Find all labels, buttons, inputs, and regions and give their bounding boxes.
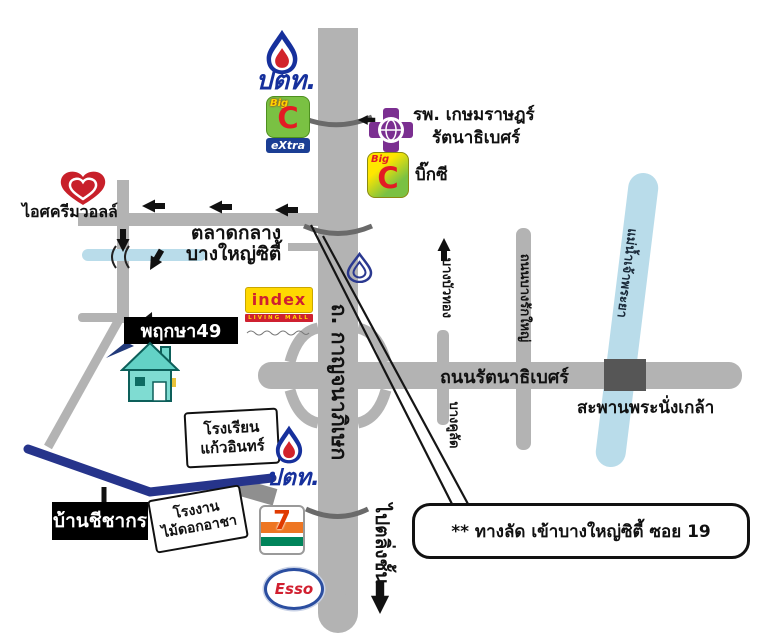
hospital-cross-icon <box>369 108 413 152</box>
phra-nang-klao-bridge-slab <box>604 359 646 391</box>
index-name-text: index <box>245 287 313 313</box>
index-logo: index LIVING MALL <box>245 287 313 341</box>
bang-rak-yai-road-label: ถนนบางรักใหญ่ <box>514 235 534 361</box>
school-line2: แก้วอินทร์ <box>200 436 265 458</box>
kanchanaphisek-road-label: ถ. กาญจนาภิเษก <box>329 277 349 487</box>
bigc-name-label: บิ๊กซี <box>415 161 448 188</box>
phra-nang-klao-bridge-label: สะพานพระนั่งเกล้า <box>577 394 714 421</box>
index-tagline-squiggle <box>245 328 311 337</box>
bang-khu-lad-label: บางคูลัด <box>443 386 463 464</box>
house-icon <box>120 340 180 404</box>
soi-19-entrance <box>288 243 322 251</box>
walls-label: ไอศครีมวอลล์ <box>22 200 118 225</box>
left-arrow-icon <box>142 200 165 213</box>
to-taling-chan-label: ไปตลิ่งชั้น <box>372 477 392 611</box>
baan-chichakorn-sign: บ้านชีชากร <box>52 502 148 540</box>
map-canvas: ปตท. Big C eXtra รพ. เกษมราษฎร์ รัตนาธิเ… <box>0 0 781 640</box>
bigc-logo: Big C <box>367 152 409 198</box>
ptt-top-label: ปตท. <box>248 60 324 101</box>
shortcut-callout: ** ทางลัด เข้าบางใหญ่ซิตี้ ซอย 19 <box>412 503 750 559</box>
left-arrow-icon <box>209 201 232 214</box>
seven-number: 7 <box>261 506 303 536</box>
market-label-line1: ตลาดกลาง <box>191 223 281 244</box>
bang-bua-thong-label: บางบัวทอง <box>436 245 456 331</box>
road-diagonal <box>48 316 121 447</box>
seven-eleven-logo: 7 <box>259 505 305 555</box>
bigc-extra-strip: eXtra <box>266 138 310 153</box>
bigc-c-text: C <box>368 161 408 195</box>
seven-green-stripe <box>261 537 303 546</box>
index-strip-text: LIVING MALL <box>245 314 313 322</box>
market-label-line2: บางใหญ่ซิตี้ <box>186 244 281 265</box>
ptt-south-label: ปตท. <box>258 460 328 496</box>
hospital-name-line2: รัตนาธิเบศร์ <box>432 124 520 151</box>
esso-logo: Esso <box>264 568 324 610</box>
globe-icon <box>380 119 402 141</box>
bigc-extra-c-text: C <box>267 101 309 135</box>
droplet-icon <box>346 252 373 283</box>
ptt-flame-icon <box>273 424 305 465</box>
road-kanchanaphisek-end <box>318 593 358 633</box>
